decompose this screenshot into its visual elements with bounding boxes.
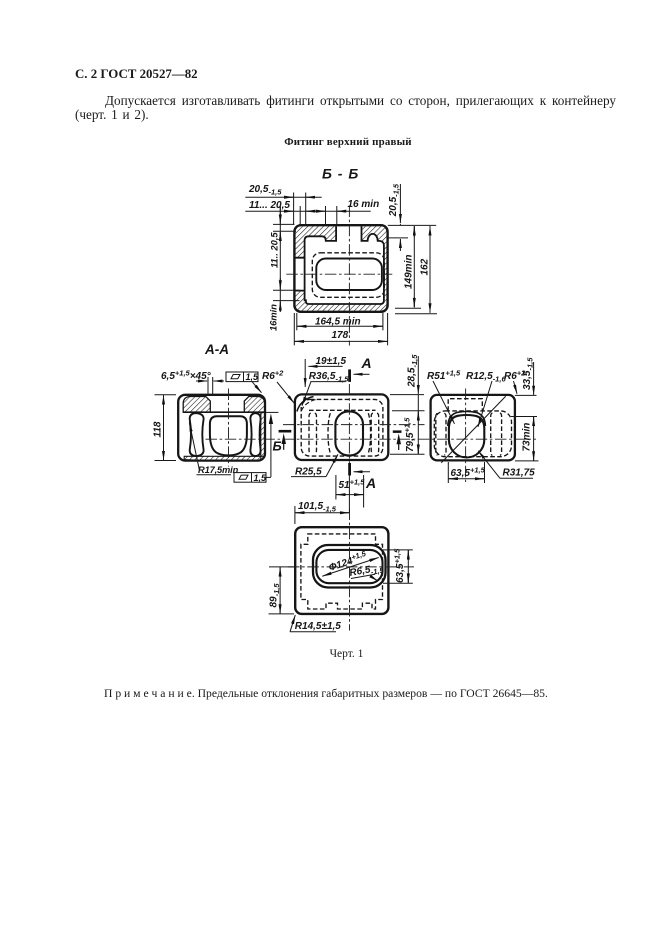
svg-text:R14,5±1,5: R14,5±1,5 (295, 621, 342, 632)
svg-text:Б - Б: Б - Б (322, 166, 359, 182)
svg-text:63,5+1,5: 63,5+1,5 (451, 465, 486, 479)
svg-text:162: 162 (420, 258, 431, 275)
svg-text:51+1,5: 51+1,5 (339, 477, 366, 491)
svg-text:А: А (361, 355, 372, 371)
svg-text:R6+2: R6+2 (262, 369, 284, 383)
svg-text:1,5: 1,5 (254, 473, 268, 483)
svg-text:R12,5-1,6: R12,5-1,6 (466, 371, 506, 384)
svg-text:11.. 20,5: 11.. 20,5 (270, 232, 280, 268)
svg-text:178: 178 (332, 330, 349, 341)
svg-text:R51+1,5: R51+1,5 (427, 369, 461, 383)
svg-text:А-А: А-А (204, 342, 229, 357)
svg-text:16 min: 16 min (348, 199, 380, 210)
svg-text:63,5+1,5: 63,5+1,5 (393, 548, 407, 583)
svg-text:79,5+1,5: 79,5+1,5 (403, 417, 417, 452)
svg-text:118: 118 (153, 421, 164, 437)
svg-text:R17,5min: R17,5min (198, 465, 239, 475)
svg-text:11... 20,5: 11... 20,5 (249, 200, 290, 211)
svg-text:R31,75: R31,75 (503, 468, 536, 479)
svg-text:1,5: 1,5 (246, 372, 260, 382)
svg-text:164,5 min: 164,5 min (315, 316, 361, 327)
svg-text:16min: 16min (269, 304, 279, 331)
svg-text:20,5-1,5: 20,5-1,5 (248, 184, 282, 197)
svg-text:19±1,5: 19±1,5 (316, 356, 347, 367)
svg-text:33,5-1,5: 33,5-1,5 (522, 357, 535, 390)
svg-text:Б: Б (273, 439, 282, 454)
svg-text:101,5-1,5: 101,5-1,5 (298, 501, 337, 514)
svg-text:28,5-1,5: 28,5-1,5 (407, 354, 420, 388)
svg-text:R25,5: R25,5 (295, 467, 322, 478)
svg-text:20,5-1,5: 20,5-1,5 (388, 183, 401, 217)
svg-text:89-1,5: 89-1,5 (269, 583, 282, 608)
svg-text:А: А (365, 475, 376, 491)
svg-text:73min: 73min (522, 423, 533, 452)
svg-text:149min: 149min (404, 255, 415, 289)
svg-text:6,5+1,5×45°: 6,5+1,5×45° (161, 369, 212, 383)
